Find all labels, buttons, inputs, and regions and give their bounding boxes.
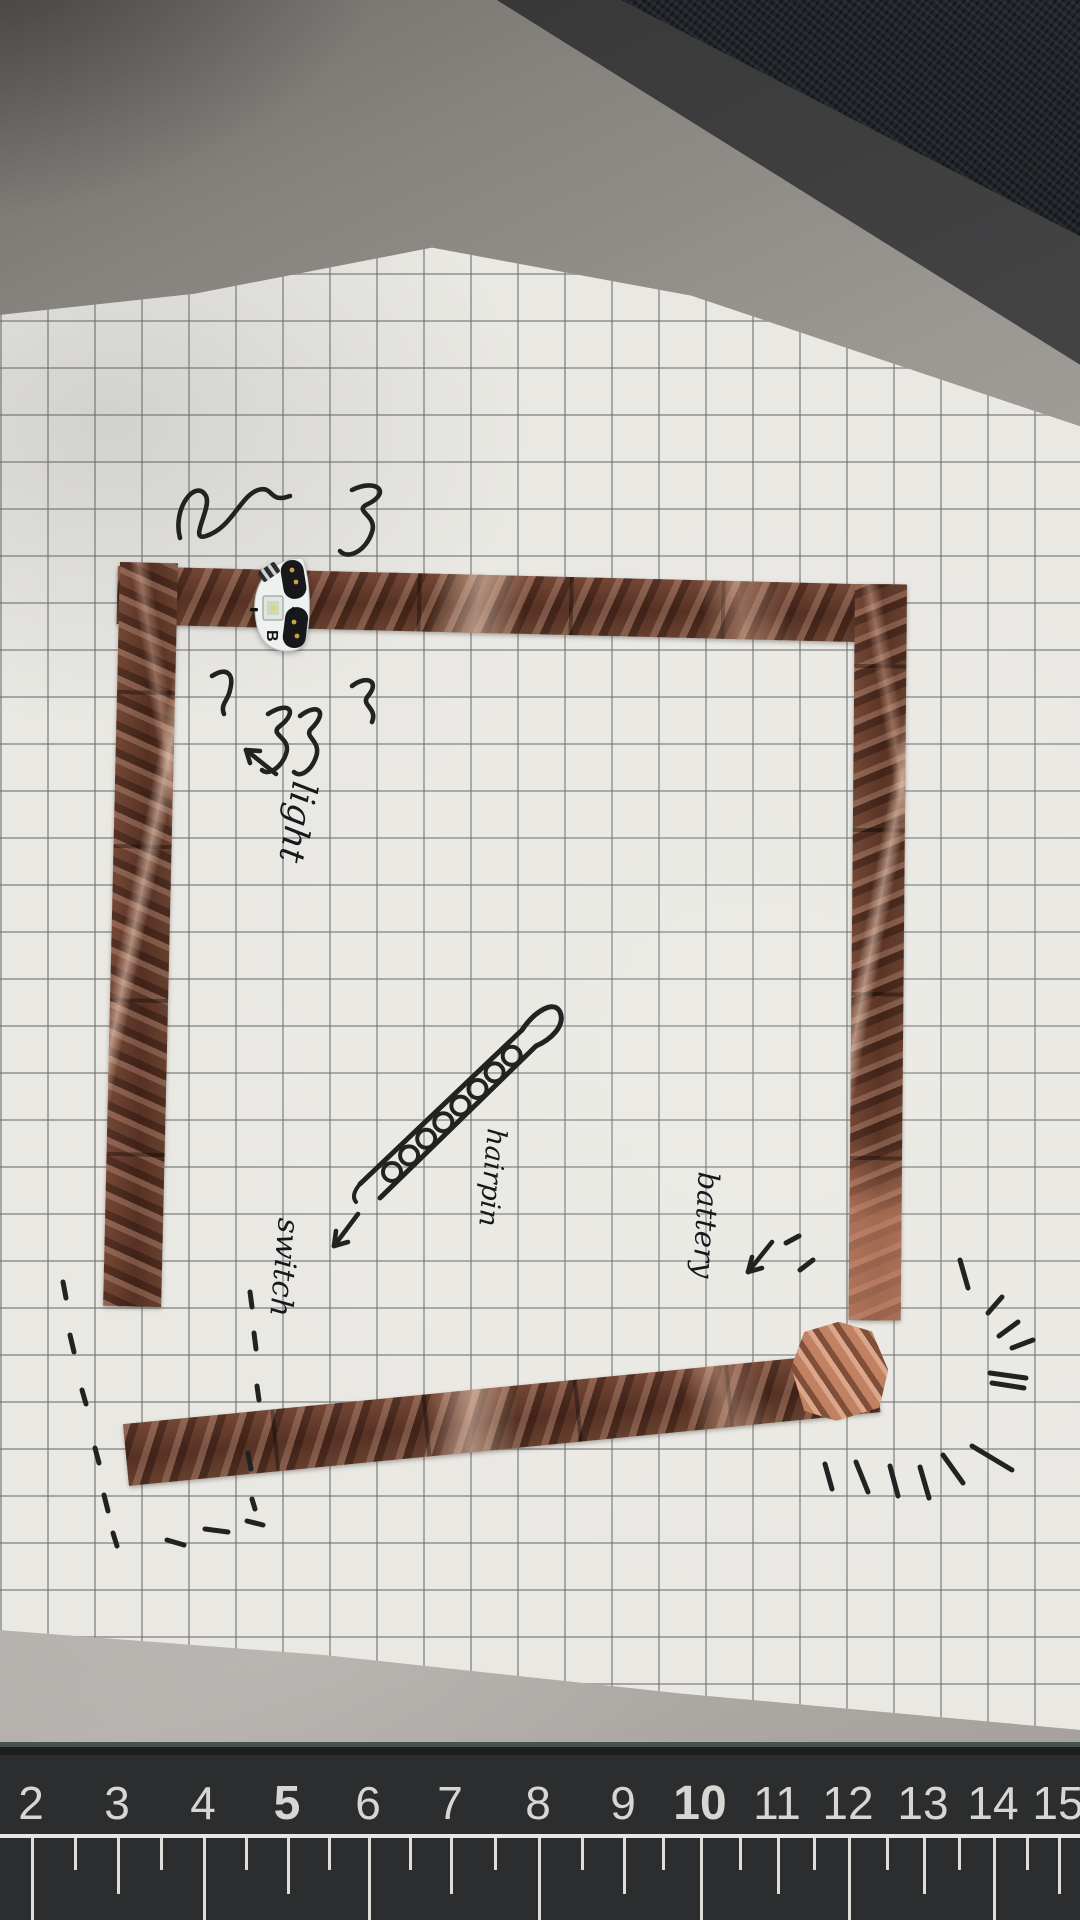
ruler-tick: [160, 1838, 163, 1870]
led-plus-mark: +: [289, 602, 297, 618]
led-chip: [263, 596, 283, 620]
ruler-tick: [31, 1838, 34, 1920]
ruler-tick: [117, 1838, 120, 1894]
ruler-tick: [739, 1838, 742, 1870]
ruler-tick: [538, 1838, 541, 1920]
ruler-number: 2: [1, 1776, 61, 1830]
ruler-number: 6: [338, 1776, 398, 1830]
ruler-tick: [328, 1838, 331, 1870]
ruler-tick: [777, 1838, 780, 1894]
ruler-tick: [886, 1838, 889, 1870]
ruler-tick: [923, 1838, 926, 1894]
ruler-number: 4: [173, 1776, 233, 1830]
ruler-number: 13: [893, 1776, 953, 1830]
copper-tape-right: [849, 584, 907, 1320]
ruler-number: 5: [257, 1776, 317, 1831]
ruler-tick: [813, 1838, 816, 1870]
led-minus-mark: [250, 608, 258, 611]
ruler: 23456789101112131415: [0, 1742, 1080, 1920]
ruler-tick: [581, 1838, 584, 1870]
ruler-tick: [993, 1838, 996, 1920]
ruler-tick: [450, 1838, 453, 1894]
ruler-tick: [662, 1838, 665, 1870]
ruler-tick: [623, 1838, 626, 1894]
ruler-number: 9: [593, 1776, 653, 1830]
ruler-tick: [74, 1838, 77, 1870]
ruler-tick: [203, 1838, 206, 1920]
ruler-tick: [409, 1838, 412, 1870]
ruler-number: 15: [1028, 1776, 1080, 1830]
led-sticker: + B: [243, 552, 313, 658]
ruler-tick: [848, 1838, 851, 1920]
ruler-number: 8: [508, 1776, 568, 1830]
ruler-number: 12: [818, 1776, 878, 1830]
label-battery: battery: [686, 1162, 726, 1288]
ruler-number: 7: [420, 1776, 480, 1830]
ruler-tick: [958, 1838, 961, 1870]
photo-paper-circuit: + B: [0, 0, 1080, 1920]
ruler-tick: [1026, 1838, 1029, 1870]
sticker-letter: B: [263, 630, 280, 642]
ruler-tick: [368, 1838, 371, 1920]
ruler-number: 14: [963, 1776, 1023, 1830]
ruler-tick: [287, 1838, 290, 1894]
ruler-tick: [245, 1838, 248, 1870]
ruler-tick: [700, 1838, 703, 1920]
ruler-tick: [494, 1838, 497, 1870]
ruler-tick: [1058, 1838, 1061, 1894]
ruler-number: 3: [87, 1776, 147, 1830]
ruler-number: 11: [747, 1776, 807, 1830]
ruler-number: 10: [670, 1776, 730, 1831]
